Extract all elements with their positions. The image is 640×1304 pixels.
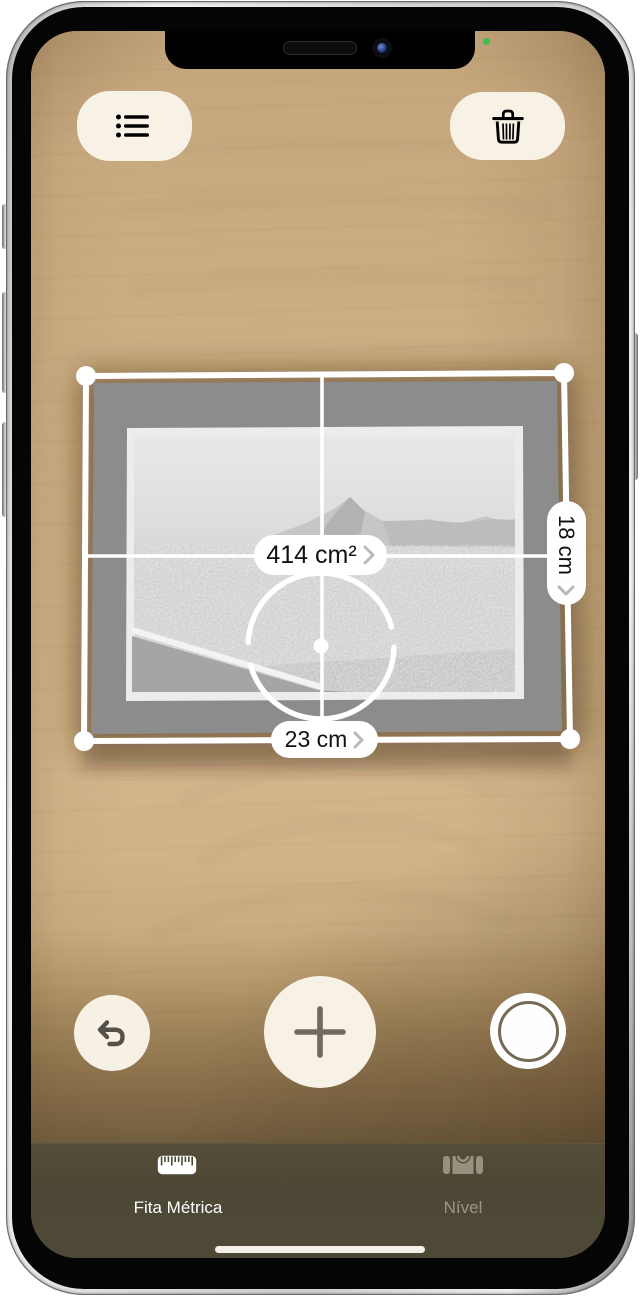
svg-text:18 cm: 18 cm xyxy=(554,515,579,575)
